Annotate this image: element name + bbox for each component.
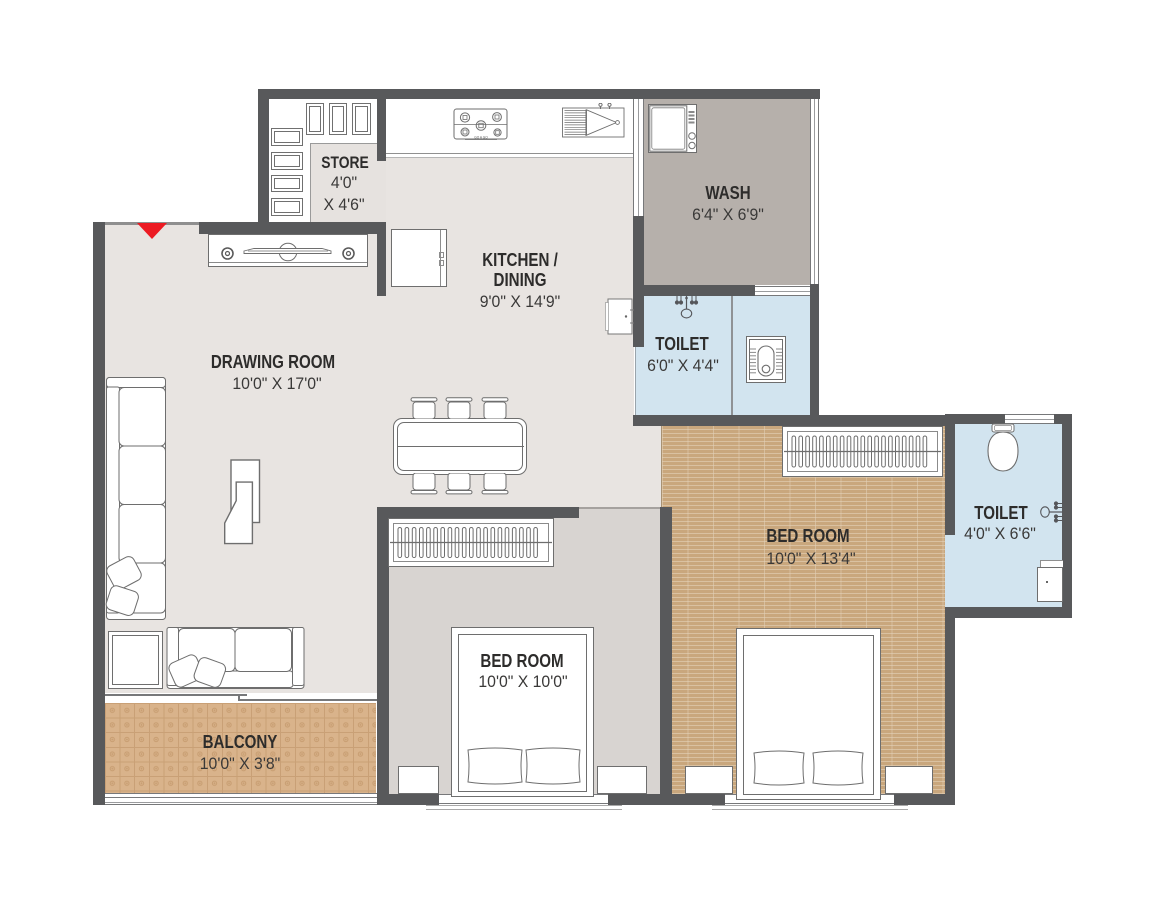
svg-text:GO A GO: GO A GO [474, 136, 488, 140]
